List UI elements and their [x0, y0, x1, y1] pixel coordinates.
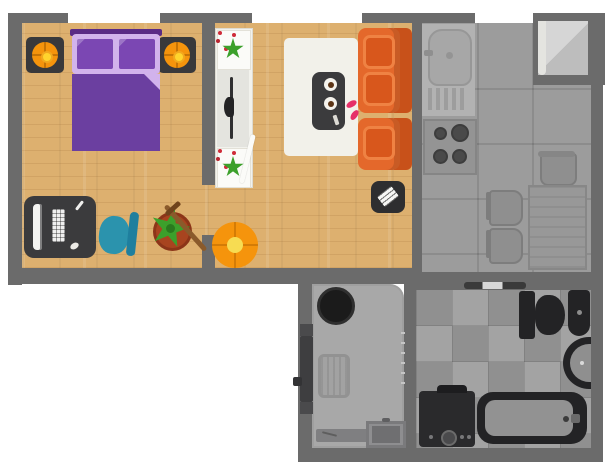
ottoman-center [227, 237, 243, 253]
folding-door-tick-5 [401, 372, 405, 374]
dining-table [528, 185, 587, 270]
washing-machine-dot-1 [429, 435, 433, 439]
folding-door-tick-2 [401, 342, 405, 344]
dining-chair-top [489, 190, 523, 226]
wall-bottom-upper [8, 268, 420, 284]
entry-door-frame-top [300, 324, 313, 336]
plant-core [166, 224, 175, 233]
dining-chair-top-back [486, 192, 491, 220]
sofa-bottom-cushion [363, 126, 395, 160]
bathtub-interior [485, 400, 573, 436]
wall-left [8, 13, 22, 285]
folding-door-tick-3 [401, 352, 405, 354]
wall-right [591, 78, 603, 462]
hall-side-table-knob [382, 418, 390, 422]
wall-living-kitchen [412, 13, 422, 278]
bathtub-faucet-handle [571, 414, 580, 423]
sofa-top-cushion-1 [363, 35, 395, 69]
monitor [33, 204, 40, 250]
entry-door [300, 336, 313, 402]
bathtub-faucet-icon [563, 416, 569, 422]
wall-sink-drain [577, 310, 582, 315]
sink-drainboard [428, 88, 468, 110]
burner-4 [452, 149, 467, 164]
entry-door-handle [293, 377, 302, 386]
faucet-icon [424, 50, 433, 56]
stove [423, 119, 477, 175]
hall-basket [317, 287, 355, 325]
dining-chair-bottom-back [486, 230, 491, 258]
entry-door-frame-bottom [300, 402, 313, 414]
folding-door-tick-4 [401, 362, 405, 364]
dining-chair-bottom [489, 228, 523, 264]
folding-door-tick-1 [401, 332, 405, 334]
trash-bin-rim [538, 151, 575, 157]
sofa-top-cushion-2 [363, 72, 395, 106]
burner-3 [433, 149, 448, 164]
round-sink-drain [580, 361, 584, 365]
toilet-bowl [535, 295, 565, 335]
washing-machine-drawer [437, 385, 467, 393]
bathroom-sliding-door [464, 282, 526, 289]
toilet-tank [519, 291, 535, 339]
kitchen-tile-line-v1 [477, 23, 479, 278]
trash-bin [540, 153, 577, 186]
wall-bottom-lower [298, 448, 603, 462]
pillow-right [119, 39, 155, 69]
tv-mount [224, 97, 234, 117]
doormat [318, 354, 350, 398]
wall-divider-bedroom-living [202, 13, 215, 185]
washing-machine-dot-3 [467, 435, 471, 439]
hall-side-table-top [372, 426, 400, 443]
washing-machine-knob [441, 430, 457, 446]
folding-door-tick-6 [401, 382, 405, 384]
sink-drain [446, 52, 453, 59]
lamp-right-bulb-icon [173, 51, 185, 63]
burner-1 [434, 127, 447, 140]
washing-machine-dot-2 [460, 435, 464, 439]
kitchen-entry-door-leaf [538, 21, 546, 75]
cup-top-coffee [328, 82, 334, 88]
bed-blanket-fold [144, 74, 160, 90]
floor-plan [0, 0, 612, 473]
pillow-left [77, 39, 113, 69]
burner-2 [451, 124, 469, 142]
cup-bottom-coffee [328, 101, 334, 107]
keyboard [52, 209, 65, 242]
lamp-left-bulb-icon [41, 51, 53, 63]
